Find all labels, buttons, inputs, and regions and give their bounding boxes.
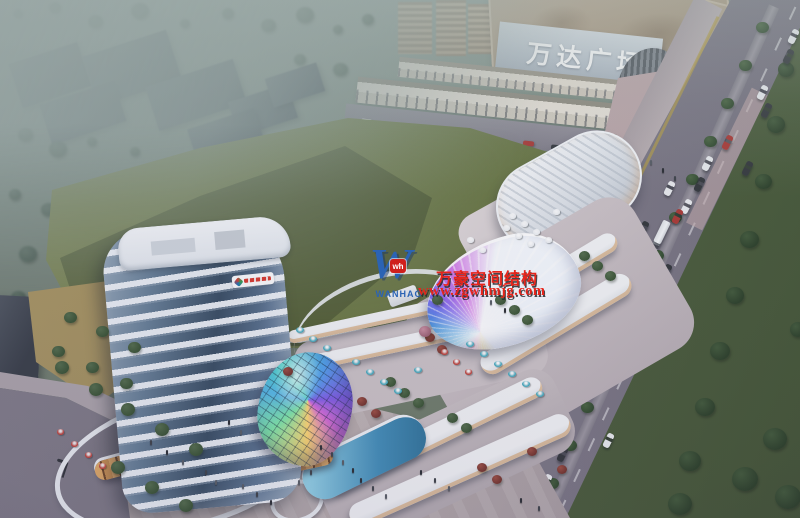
pedestrian	[182, 460, 184, 465]
watermark: W wh WANHAO 万豪空间结构 www.zgwhmjg.com	[360, 244, 590, 316]
sidewalk-tree	[89, 383, 103, 396]
red-umbrella	[57, 429, 64, 434]
white-umbrella	[533, 229, 540, 234]
teal-umbrella	[309, 336, 317, 342]
pedestrian	[385, 494, 387, 499]
lot-tree	[64, 312, 77, 324]
sidewalk-tree	[179, 499, 193, 512]
white-umbrella	[503, 225, 510, 230]
terrace-tree-red	[527, 447, 537, 456]
pedestrian	[420, 470, 422, 475]
teal-umbrella	[522, 381, 530, 387]
teal-umbrella	[494, 361, 502, 367]
lot-tree	[86, 362, 99, 374]
watermark-logo-badge: wh	[390, 259, 406, 273]
pedestrian	[650, 160, 652, 165]
teal-umbrella	[296, 327, 304, 333]
pedestrian	[270, 500, 272, 505]
sidewalk-tree	[189, 443, 203, 456]
pedestrian	[166, 450, 168, 455]
lot-tree	[120, 378, 133, 390]
teal-umbrella	[380, 379, 388, 385]
sidewalk-tree	[155, 423, 169, 436]
teal-umbrella	[480, 351, 488, 357]
teal-umbrella	[508, 371, 516, 377]
pedestrian	[256, 492, 258, 497]
lot-tree	[128, 342, 141, 354]
teal-umbrella	[352, 359, 360, 365]
lot-tree	[52, 346, 65, 358]
pedestrian	[228, 420, 230, 425]
pedestrian	[538, 506, 540, 511]
terrace-tree-red	[283, 367, 293, 376]
white-umbrella	[509, 213, 516, 218]
terrace-tree	[447, 413, 458, 423]
terrace-tree-pink	[419, 326, 431, 337]
white-umbrella	[467, 237, 474, 242]
white-umbrella	[521, 221, 528, 226]
lot-tree	[96, 326, 109, 338]
pedestrian	[298, 480, 300, 485]
pedestrian	[434, 478, 436, 483]
terrace-tree	[461, 423, 472, 433]
sidewalk-tree	[121, 403, 135, 416]
pedestrian	[448, 486, 450, 491]
sidewalk-tree	[55, 361, 69, 374]
white-umbrella	[515, 233, 522, 238]
terrace-tree	[522, 315, 533, 325]
red-umbrella	[99, 463, 106, 468]
terrace-tree-red	[477, 463, 487, 472]
pedestrian	[674, 176, 676, 181]
teal-umbrella	[414, 367, 422, 373]
pedestrian	[352, 468, 354, 473]
pedestrian	[662, 168, 664, 173]
pedestrian	[372, 486, 374, 491]
teal-umbrella	[394, 388, 402, 394]
terrace-tree-red	[492, 475, 502, 484]
pedestrian	[150, 440, 152, 445]
teal-umbrella	[366, 369, 374, 375]
teal-umbrella	[536, 391, 544, 397]
terrace-tree-red	[371, 409, 381, 418]
pedestrian	[520, 498, 522, 503]
terrace-tree	[413, 398, 424, 408]
white-umbrella	[553, 209, 560, 214]
pedestrian	[331, 452, 333, 457]
pedestrian	[215, 480, 217, 485]
pedestrian	[242, 484, 244, 489]
teal-umbrella	[466, 341, 474, 347]
white-umbrella	[545, 237, 552, 242]
terrace-tree-red	[557, 465, 567, 474]
pedestrian	[360, 478, 362, 483]
watermark-url-text: www.zgwhmjg.com	[418, 283, 546, 300]
red-umbrella	[465, 369, 472, 374]
terrace-tree	[592, 261, 603, 271]
terrace-tree	[605, 271, 616, 281]
pedestrian	[310, 470, 312, 475]
aerial-render-scene: 万达广场	[0, 0, 800, 518]
red-umbrella	[453, 359, 460, 364]
terrace-tree-red	[357, 397, 367, 406]
sidewalk-tree	[145, 481, 159, 494]
pedestrian	[240, 430, 242, 435]
red-umbrella	[71, 441, 78, 446]
pedestrian	[320, 445, 322, 450]
red-umbrella	[441, 349, 448, 354]
red-umbrella	[85, 452, 92, 457]
sidewalk-tree	[111, 461, 125, 474]
teal-umbrella	[323, 345, 331, 351]
pedestrian	[342, 460, 344, 465]
pedestrian	[205, 470, 207, 475]
